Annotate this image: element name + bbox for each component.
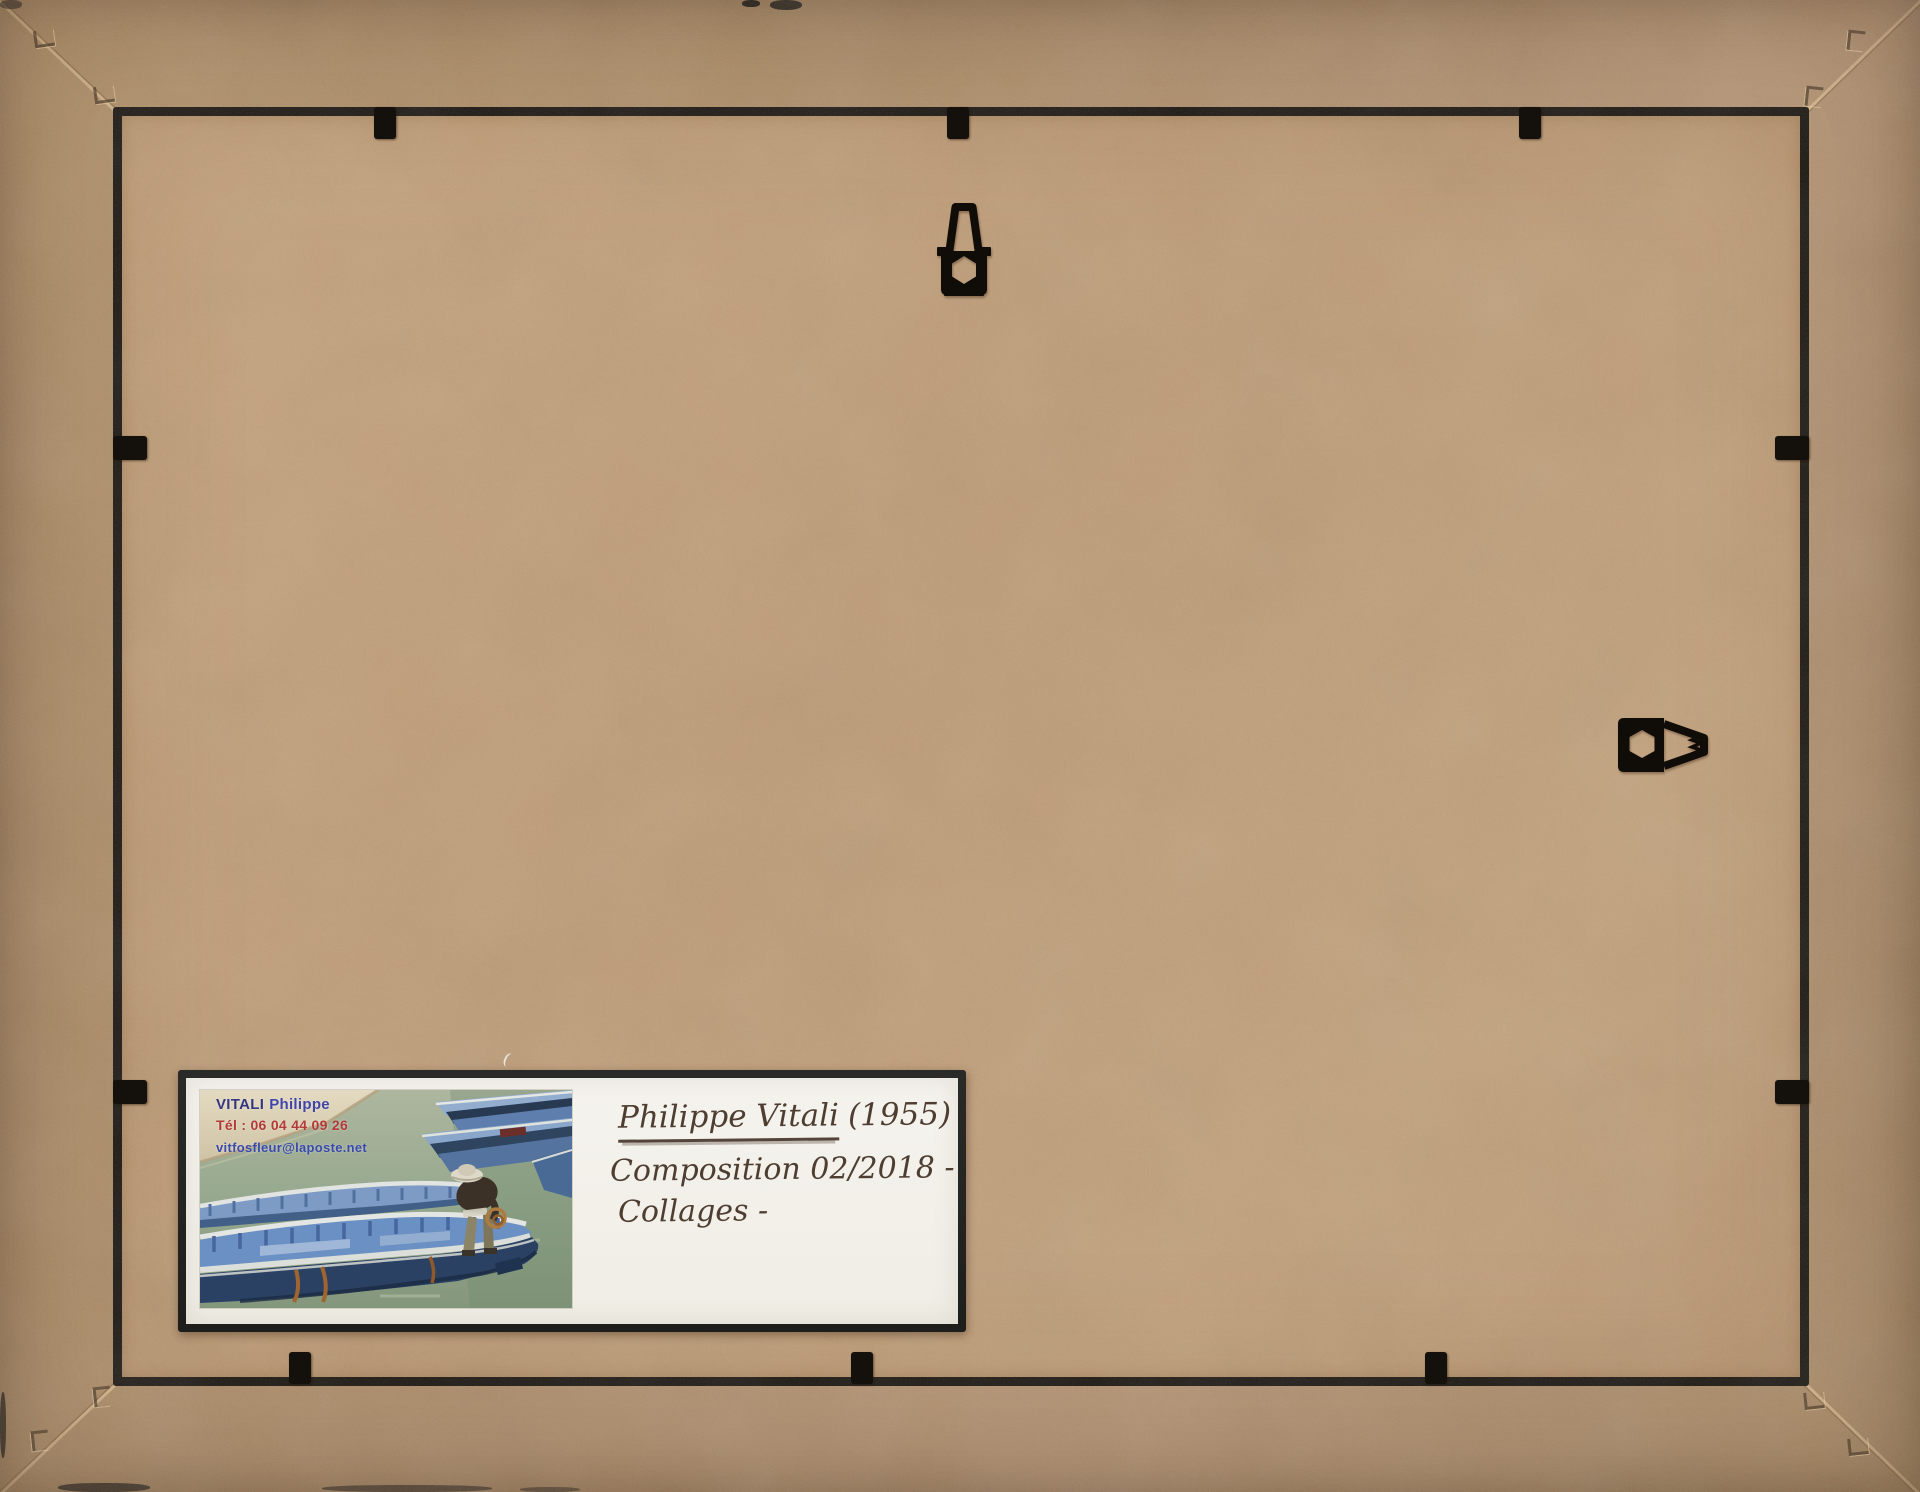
retaining-clip-right-1: [1775, 436, 1809, 460]
card-name-rest: Philippe: [269, 1096, 330, 1113]
hanging-bracket-right-icon: [1616, 714, 1714, 776]
staple-mark: [31, 1430, 50, 1452]
handwriting-birth-year: (1955): [848, 1096, 951, 1133]
handwriting-title-line: Composition 02/2018 -: [610, 1150, 955, 1189]
handwriting-medium-line: Collages -: [618, 1193, 768, 1230]
card-name: VITALIPhilippe: [216, 1096, 330, 1113]
handwriting-artist-line: Philippe Vitali(1955): [618, 1096, 951, 1135]
staple-mark: [93, 1386, 112, 1408]
card-name-bold: VITALI: [216, 1096, 264, 1113]
staple-mark: [1805, 86, 1824, 108]
handwriting-artist-name: Philippe Vitali: [618, 1097, 839, 1142]
label-photo-harbor-boats: VITALIPhilippe Tél : 06 04 44 09 26 vitf…: [200, 1090, 572, 1308]
staple-mark: [1803, 1391, 1825, 1410]
staple-mark: [33, 29, 55, 49]
edge-chip: [520, 1487, 580, 1492]
framed-picture-back-photo: VITALIPhilippe Tél : 06 04 44 09 26 vitf…: [0, 0, 1920, 1492]
staple-mark: [1847, 30, 1866, 52]
retaining-clip-left-1: [113, 436, 147, 460]
staple-mark: [1847, 1437, 1869, 1456]
retaining-clip-bottom-3: [1425, 1352, 1447, 1384]
retaining-clip-left-2: [113, 1080, 147, 1104]
retaining-clip-top-3: [1519, 107, 1541, 139]
retaining-clip-top-2: [947, 107, 969, 139]
edge-chip: [0, 1392, 6, 1458]
edge-chip: [0, 0, 22, 9]
edge-chip: [742, 0, 760, 7]
retaining-clip-bottom-2: [851, 1352, 873, 1384]
label-paper: VITALIPhilippe Tél : 06 04 44 09 26 vitf…: [186, 1078, 958, 1324]
card-email: vitfosfleur@laposte.net: [216, 1140, 367, 1155]
edge-chip: [58, 1483, 150, 1492]
retaining-clip-bottom-1: [289, 1352, 311, 1384]
staple-mark: [93, 85, 115, 105]
edge-chip: [322, 1485, 492, 1492]
retaining-clip-right-2: [1775, 1080, 1809, 1104]
retaining-clip-top-1: [374, 107, 396, 139]
hanging-bracket-top-icon: [934, 198, 994, 298]
artist-label: VITALIPhilippe Tél : 06 04 44 09 26 vitf…: [178, 1070, 966, 1332]
card-phone: Tél : 06 04 44 09 26: [216, 1117, 348, 1133]
edge-chip: [770, 0, 802, 10]
